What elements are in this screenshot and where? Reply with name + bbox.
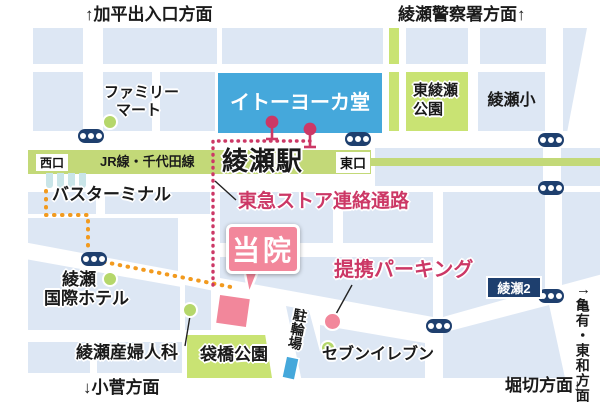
higashi-ayase-park-label: 東綾瀬 xyxy=(413,83,458,99)
direction-police: 綾瀬警察署方面↑ xyxy=(398,6,526,24)
traffic-light-icon xyxy=(81,252,107,266)
traffic-light-icon xyxy=(345,132,371,146)
ayase2-badge: 綾瀬2 xyxy=(486,276,542,299)
east-exit-label: 東口 xyxy=(336,152,370,173)
direction-horikiri: 堀切方面↓ xyxy=(505,377,582,395)
family-mart-label: マート xyxy=(116,103,161,119)
ito-yokado-label: イトーヨーカ堂 xyxy=(218,73,382,133)
bicycle-parking-icon xyxy=(282,356,299,380)
direction-kameari: 亀有・東和方面 xyxy=(575,298,590,403)
bus-terminal-label: バスターミナル xyxy=(52,186,171,204)
west-exit-label: 西口 xyxy=(36,154,68,171)
parking-pointer-line xyxy=(336,285,352,314)
seven-eleven-label: セブンイレブン xyxy=(322,347,434,364)
traffic-light-icon xyxy=(538,181,564,195)
traffic-light-icon xyxy=(426,319,452,333)
ayase-elementary-label: 綾瀬小 xyxy=(478,72,545,131)
direction-kosuge: ↓小菅方面 xyxy=(83,379,160,397)
family-mart-label: ファミリー xyxy=(104,85,179,101)
traffic-light-icon xyxy=(538,133,564,147)
higashi-ayase-park-label: 公園 xyxy=(413,102,443,118)
station-name-label: 綾瀬駅 xyxy=(222,148,303,175)
clinic-marker: 当院 xyxy=(226,224,300,274)
partner-parking-label: 提携パーキング xyxy=(334,260,473,281)
fukurobashi-park-label: 袋橋公園 xyxy=(200,346,268,364)
hotel-dot xyxy=(102,271,118,287)
direction-kahei: ↑加平出入口方面 xyxy=(85,6,213,24)
traffic-light-icon xyxy=(78,129,104,143)
rail-line-label: JR線・千代田線 xyxy=(100,155,195,169)
obgyn-dot xyxy=(182,302,198,318)
direction-kameari-arrow: → xyxy=(576,282,591,298)
obgyn-label: 綾瀬産婦人科 xyxy=(76,344,178,362)
hotel-label: 綾瀬 xyxy=(62,271,96,289)
passage-label: 東急ストア連絡通路 xyxy=(238,192,409,212)
access-map: ↑加平出入口方面 綾瀬警察署方面↑ ファミリー マート イトーヨーカ堂 東綾瀬 … xyxy=(0,0,600,400)
hotel-label: 国際ホテル xyxy=(44,290,129,308)
clinic-building xyxy=(215,294,251,328)
partner-parking-dot xyxy=(323,312,342,331)
passage-pointer-line xyxy=(215,181,236,200)
obgyn-pointer-line xyxy=(185,316,190,346)
